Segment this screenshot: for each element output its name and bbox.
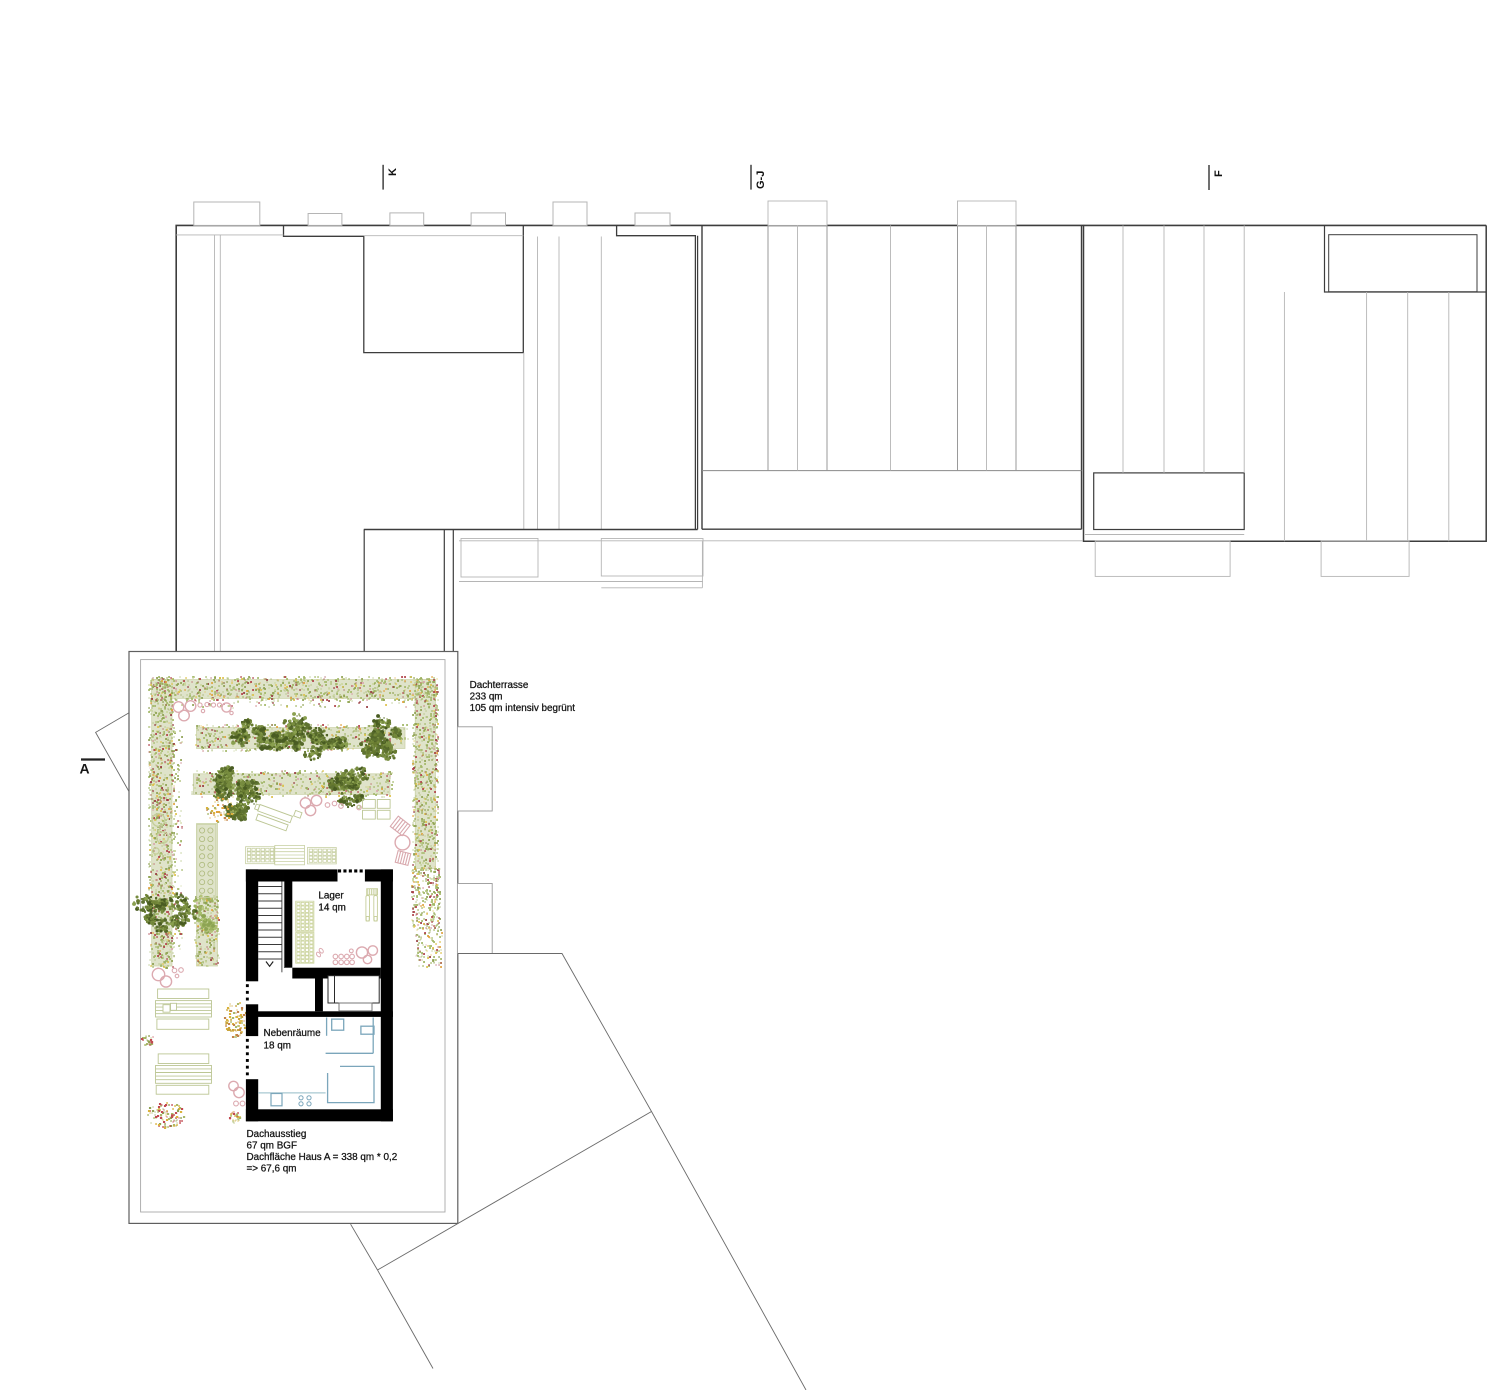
svg-text:14 qm: 14 qm bbox=[318, 903, 345, 914]
svg-text:67 qm BGF: 67 qm BGF bbox=[247, 1141, 298, 1152]
svg-text:105 qm intensiv begrünt: 105 qm intensiv begrünt bbox=[470, 703, 576, 714]
svg-text:Dachausstieg: Dachausstieg bbox=[247, 1129, 307, 1140]
svg-text:=> 67,6 qm: => 67,6 qm bbox=[247, 1164, 297, 1175]
svg-text:F: F bbox=[1213, 170, 1225, 177]
svg-text:Nebenräume: Nebenräume bbox=[264, 1028, 322, 1039]
svg-text:K: K bbox=[387, 168, 399, 176]
svg-text:18 qm: 18 qm bbox=[264, 1040, 291, 1051]
svg-text:Dachterrasse: Dachterrasse bbox=[470, 680, 529, 691]
svg-text:G-J: G-J bbox=[755, 171, 767, 189]
svg-text:233 qm: 233 qm bbox=[470, 691, 503, 702]
svg-text:A: A bbox=[80, 761, 90, 777]
svg-text:Dachfläche Haus A = 338 qm * 0: Dachfläche Haus A = 338 qm * 0,2 bbox=[247, 1152, 398, 1163]
svg-text:Lager: Lager bbox=[318, 890, 344, 901]
